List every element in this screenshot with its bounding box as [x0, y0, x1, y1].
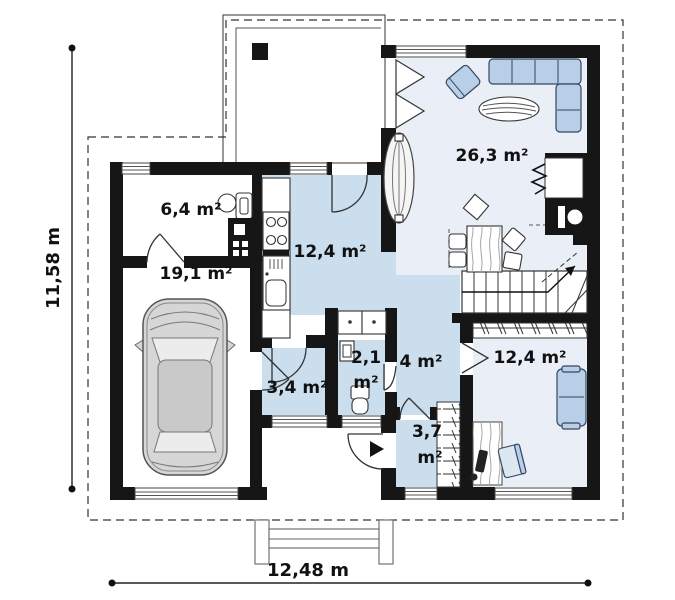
- kitchen-counter: [262, 178, 290, 338]
- window-kitchen: [290, 163, 327, 174]
- window-vestibule: [272, 416, 327, 427]
- chair: [449, 252, 466, 267]
- garage-area-label: 19,1 m²: [159, 264, 232, 284]
- chimney: [252, 43, 268, 60]
- car-windshield: [152, 338, 218, 362]
- bedroom-area-label: 12,4 m²: [493, 348, 566, 368]
- terrace: [223, 15, 385, 163]
- chair: [503, 252, 523, 271]
- door-entrance: [348, 434, 384, 469]
- stove-icon: [263, 212, 289, 256]
- wc-area-value: 2,1: [351, 348, 381, 368]
- vestibule-area-label: 3,4 m²: [266, 378, 327, 398]
- wall-column: [384, 133, 414, 223]
- kitchen-area-label: 12,4 m²: [293, 242, 366, 262]
- door-wc: [384, 364, 396, 390]
- entrance-arrow-icon: [370, 441, 384, 457]
- flue-block: [228, 218, 262, 262]
- window-wc: [342, 416, 381, 427]
- hall-area-label: 4 m²: [400, 352, 443, 372]
- closet-wardrobe: [437, 402, 460, 487]
- floor-plan-page: 11,58 m 12,48 m 6,4 m² 19,1 m² 12,4 m² 2…: [0, 0, 675, 600]
- window-bedroom: [495, 488, 572, 499]
- coffee-table: [479, 97, 539, 121]
- desk: [471, 422, 503, 485]
- sofa: [557, 366, 586, 429]
- window-utility: [122, 163, 150, 174]
- wardrobe-area-value: 3,7: [412, 422, 442, 442]
- dimension-width: 12,48 m: [109, 560, 592, 587]
- height-dimension-label: 11,58 m: [43, 227, 64, 309]
- wc-area-unit: m²: [353, 373, 378, 393]
- door-utility-garage: [147, 234, 184, 262]
- hall-floor: [396, 262, 460, 415]
- car: [135, 299, 235, 475]
- chair: [449, 234, 466, 249]
- width-dimension-label: 12,48 m: [267, 560, 349, 581]
- sink-icon: [263, 256, 290, 310]
- car-roof: [158, 360, 212, 432]
- entrance-steps: [255, 520, 393, 564]
- closet-bedroom: [473, 323, 587, 338]
- car-mirror: [135, 340, 143, 352]
- car-rear-window: [154, 432, 216, 452]
- wardrobe-area-unit: m²: [417, 448, 442, 468]
- car-mirror: [227, 340, 235, 352]
- window-wardrobe: [405, 488, 437, 499]
- washer-dryer: [338, 311, 386, 334]
- boiler-icon: [218, 193, 252, 219]
- utility-area-label: 6,4 m²: [160, 200, 221, 220]
- garage-gate: [135, 488, 238, 499]
- floor-plan-drawing: 11,58 m 12,48 m 6,4 m² 19,1 m² 12,4 m² 2…: [0, 0, 675, 600]
- living-area-label: 26,3 m²: [455, 146, 528, 166]
- window-living: [396, 46, 466, 57]
- dimension-height: 11,58 m: [43, 45, 76, 493]
